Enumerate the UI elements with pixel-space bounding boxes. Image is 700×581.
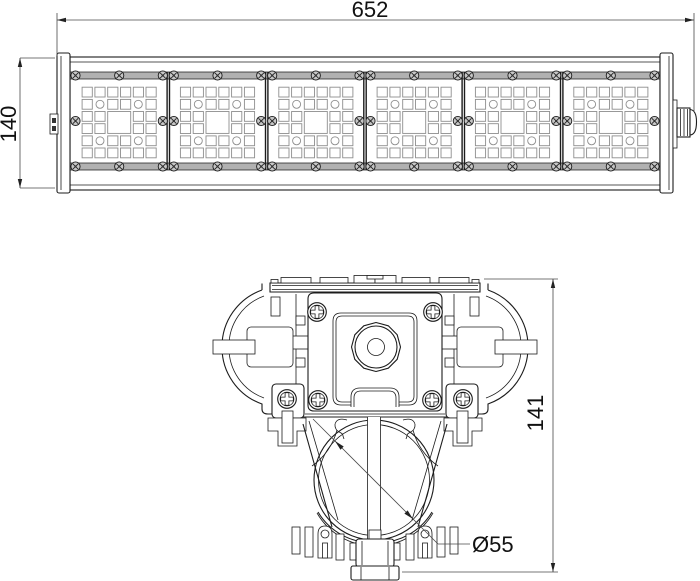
dim-height-label: 140	[0, 106, 21, 143]
screw	[410, 71, 419, 80]
screw	[268, 71, 277, 80]
screw	[115, 162, 124, 171]
screw	[563, 71, 572, 80]
screw	[563, 116, 572, 125]
screw	[508, 71, 517, 80]
screw	[311, 162, 320, 171]
center-boss	[352, 323, 401, 372]
screw	[115, 71, 124, 80]
screw	[257, 116, 266, 125]
screw	[464, 162, 473, 171]
screw	[257, 71, 266, 80]
screw	[366, 116, 375, 125]
hex-nut	[351, 566, 399, 580]
screw	[169, 116, 178, 125]
dim-section-height-label: 141	[523, 395, 548, 432]
screw	[606, 71, 615, 80]
screw	[366, 162, 375, 171]
technical-drawing: 652 140 141 Ø55	[0, 0, 700, 581]
screw	[169, 71, 178, 80]
screw	[169, 162, 178, 171]
screw	[257, 162, 266, 171]
screw	[355, 116, 364, 125]
screw	[71, 162, 80, 171]
screw	[268, 162, 277, 171]
threaded-rod	[368, 417, 381, 539]
dim-length-label: 652	[352, 0, 389, 22]
end-cap-left	[57, 53, 70, 193]
screw	[508, 162, 517, 171]
screw	[453, 162, 462, 171]
screw	[410, 162, 419, 171]
screw	[311, 71, 320, 80]
screw	[563, 162, 572, 171]
screw	[453, 71, 462, 80]
gland-nut	[677, 108, 690, 137]
screw	[71, 71, 80, 80]
screw	[464, 71, 473, 80]
screw	[213, 71, 222, 80]
dim-height: 140	[0, 58, 55, 188]
end-cap-right	[660, 53, 673, 193]
screw	[552, 71, 561, 80]
screw	[650, 71, 659, 80]
screw	[606, 162, 615, 171]
screw	[355, 162, 364, 171]
screw	[158, 71, 167, 80]
screw	[453, 116, 462, 125]
screw	[213, 162, 222, 171]
screw	[355, 71, 364, 80]
top-view	[50, 53, 697, 193]
screw	[366, 71, 375, 80]
cable-gland	[673, 100, 697, 148]
screw	[158, 116, 167, 125]
dim-diameter-label: Ø55	[472, 532, 514, 557]
screw	[71, 116, 80, 125]
screw	[650, 162, 659, 171]
screw	[268, 116, 277, 125]
gland-dome	[690, 110, 697, 136]
screw	[552, 162, 561, 171]
screw	[650, 116, 659, 125]
screw	[158, 162, 167, 171]
rail-tab-notch	[367, 276, 383, 280]
screw	[464, 116, 473, 125]
screw	[552, 116, 561, 125]
